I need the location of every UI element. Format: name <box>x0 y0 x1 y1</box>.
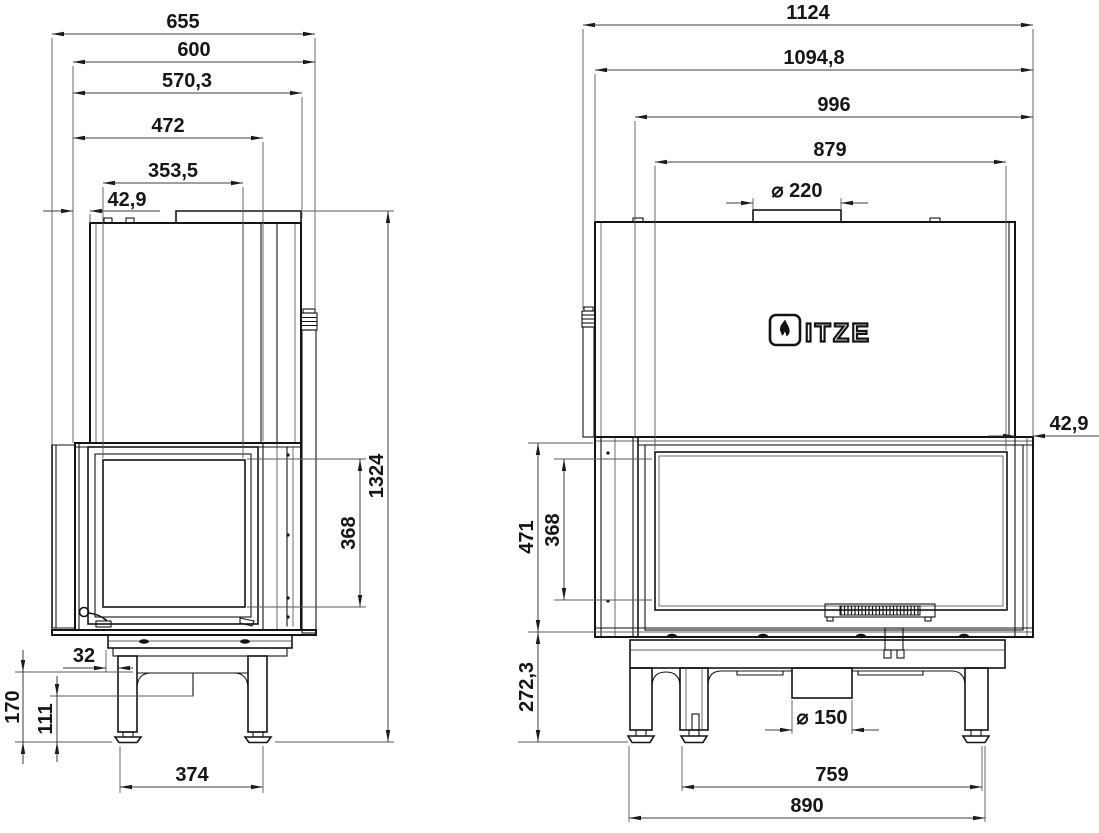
dim-feet-spacing-inner-label: 759 <box>815 764 848 786</box>
dim-firebox-height-label: 471 <box>516 520 538 553</box>
ventilation-grille <box>825 604 935 621</box>
dim-door-offset-side-label: 42,9 <box>108 189 147 211</box>
dim-feet-spacing-side-label: 374 <box>175 764 209 786</box>
dim-feet-spacing-inner: 759 <box>682 764 982 787</box>
dim-overall-height: 1324 <box>366 211 388 742</box>
dim-leg-height-label: 111 <box>35 703 57 734</box>
dim-feet-spacing-outer: 890 <box>629 795 985 818</box>
dim-overall-width: 1124 <box>583 2 1033 25</box>
front-glass <box>655 452 1007 610</box>
dim-depth-570-3: 570,3 <box>73 70 302 93</box>
firebox-front <box>595 437 1033 637</box>
feet-side <box>115 732 271 743</box>
air-duct-riser <box>885 628 903 650</box>
side-glass <box>103 460 245 607</box>
rear-leg-outline <box>140 673 193 696</box>
dim-air-inlet-diameter-label: ⌀ 150 <box>797 707 848 729</box>
dim-glass-height-side: 368 <box>338 459 360 607</box>
feet-front <box>628 730 989 743</box>
technical-drawing-page: 655 600 570,3 472 353,5 42,9 <box>0 0 1099 833</box>
convection-casing <box>90 223 301 443</box>
dim-glass-depth-label: 353,5 <box>148 160 198 182</box>
leg-adjuster-pin <box>692 714 699 730</box>
dim-body-depth-label: 600 <box>177 39 210 61</box>
dim-glass-height-front: 368 <box>542 459 564 600</box>
dim-feet-spacing-side: 374 <box>120 764 263 787</box>
dim-flue-diameter: ⌀ 220 <box>726 180 868 203</box>
dim-glass-width-label: 879 <box>813 139 846 161</box>
air-inlet-duct <box>792 668 852 698</box>
base-frame-front <box>630 628 1005 668</box>
front-glass-door <box>645 445 1023 630</box>
dim-body-width-label: 1094,8 <box>783 47 844 69</box>
brand-logo: ITZE <box>770 315 871 348</box>
front-view-dimensions: 1124 1094,8 996 879 ⌀ 220 <box>516 2 1099 822</box>
dim-overall-depth-label: 655 <box>166 11 199 33</box>
dim-glass-height-side-label: 368 <box>338 516 360 549</box>
rear-air-channel <box>301 309 317 633</box>
dim-body-depth: 600 <box>73 39 315 62</box>
front-view-geometry: ITZE <box>582 210 1033 743</box>
fireplace-dimension-drawing: 655 600 570,3 472 353,5 42,9 <box>0 0 1099 833</box>
dim-base-height-side: 170 <box>2 650 24 764</box>
dim-depth-472: 472 <box>73 115 263 138</box>
front-glass-edge <box>52 445 75 628</box>
dim-glass-width: 879 <box>655 139 1006 162</box>
dim-air-inlet-diameter: ⌀ 150 <box>765 707 879 730</box>
side-view: 655 600 570,3 472 353,5 42,9 <box>2 11 394 793</box>
dim-door-offset-front-label: 42,9 <box>1050 413 1089 435</box>
base-frame-side <box>108 635 292 656</box>
dim-door-offset-front: 42,9 <box>988 413 1099 436</box>
dim-overall-depth: 655 <box>52 11 315 34</box>
front-view: ITZE <box>516 2 1099 822</box>
dim-firebox-height: 471 <box>516 443 538 632</box>
dim-glass-height-front-label: 368 <box>542 513 564 546</box>
side-air-channel <box>582 307 595 437</box>
dim-depth-570-3-label: 570,3 <box>162 70 212 92</box>
logo-letters: ITZE <box>805 318 871 348</box>
dim-body-width: 1094,8 <box>595 47 1033 70</box>
dim-flue-diameter-label: ⌀ 220 <box>772 180 823 202</box>
dim-door-offset-side: 42,9 <box>43 189 160 211</box>
dim-depth-472-label: 472 <box>151 115 184 137</box>
dim-base-height-front: 272,3 <box>516 632 538 742</box>
dim-inner-width: 996 <box>635 94 1033 117</box>
flue-collar <box>753 210 841 222</box>
legs-side <box>118 656 267 732</box>
dim-base-height-front-label: 272,3 <box>516 662 538 712</box>
dim-leg-height: 111 <box>35 676 57 762</box>
top-step-plate <box>176 211 301 223</box>
side-glass-door <box>88 447 258 624</box>
dim-overall-width-label: 1124 <box>786 2 830 24</box>
firebox-body <box>75 443 301 630</box>
dim-glass-depth: 353,5 <box>103 160 243 183</box>
dim-feet-spacing-outer-label: 890 <box>790 795 823 817</box>
dim-leg-offset-label: 32 <box>73 645 95 667</box>
side-view-dimensions: 655 600 570,3 472 353,5 42,9 <box>2 11 394 793</box>
dim-base-height-side-label: 170 <box>2 690 24 723</box>
dim-inner-width-label: 996 <box>817 94 850 116</box>
dim-overall-height-label: 1324 <box>366 453 388 498</box>
